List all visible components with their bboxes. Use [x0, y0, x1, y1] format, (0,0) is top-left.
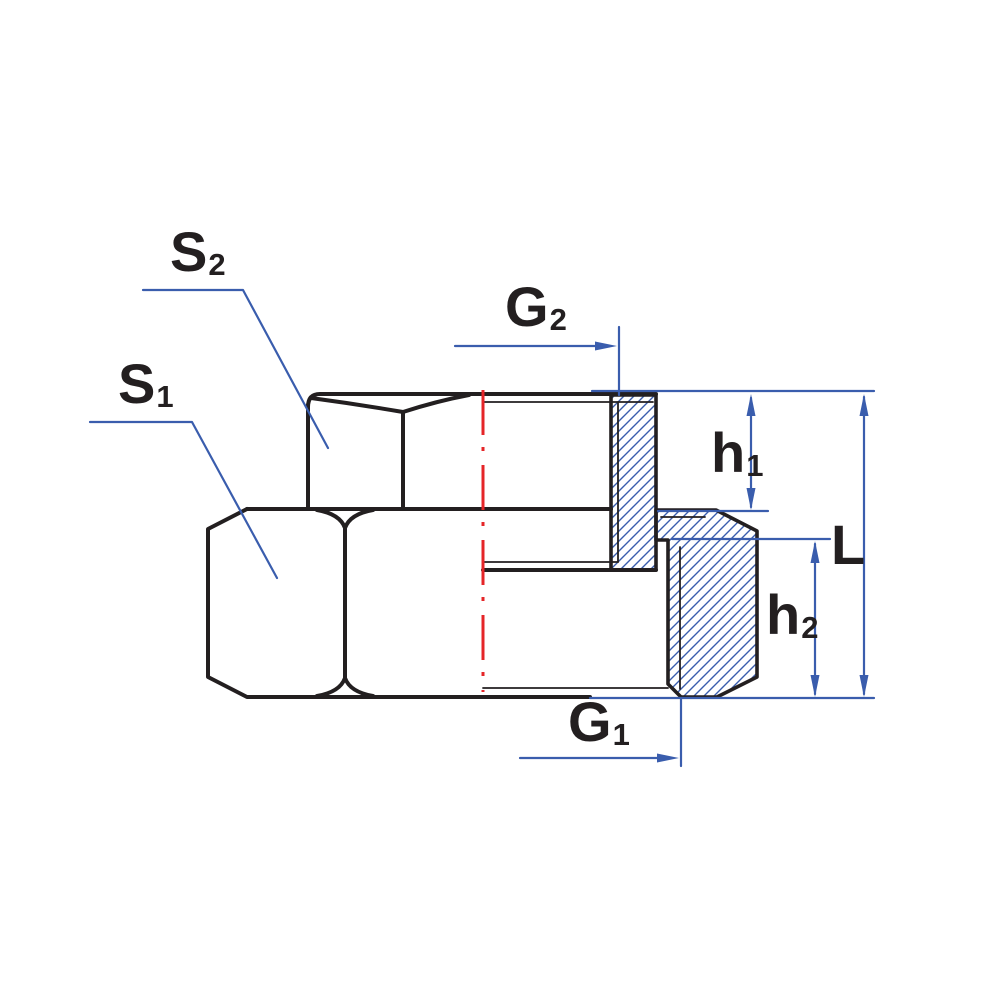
- h2-up-arrowhead: [811, 541, 820, 563]
- fitting-section-drawing: [0, 0, 1000, 1000]
- label-g1-subscript: 1: [613, 717, 630, 752]
- label-h1: h1: [711, 425, 763, 481]
- label-h1-subscript: 1: [746, 448, 763, 483]
- h1-down-arrowhead: [747, 488, 756, 510]
- h1-up-arrowhead: [747, 394, 756, 416]
- h2-down-arrowhead: [811, 675, 820, 697]
- label-g2-subscript: 2: [550, 302, 567, 337]
- label-h2-main: h: [766, 583, 800, 646]
- technical-drawing-canvas: S2 S1 G2 G1 h1 h2 L: [0, 0, 1000, 1000]
- s1-leader-line: [90, 422, 277, 578]
- part-outline: [208, 394, 656, 697]
- label-s2-subscript: 2: [208, 247, 225, 282]
- label-l: L: [831, 517, 866, 573]
- l-down-arrowhead: [860, 675, 869, 697]
- label-s1-main: S: [118, 352, 155, 415]
- large-hex-outline: [208, 509, 590, 697]
- label-h2-subscript: 2: [801, 610, 818, 645]
- label-h2: h2: [766, 587, 818, 643]
- label-s2: S2: [170, 224, 226, 280]
- l-up-arrowhead: [860, 394, 869, 416]
- label-g2-main: G: [505, 275, 549, 338]
- label-s2-main: S: [170, 220, 207, 283]
- label-g1: G1: [568, 694, 630, 750]
- label-s1-subscript: 1: [156, 379, 173, 414]
- label-s1: S1: [118, 356, 174, 412]
- label-h1-main: h: [711, 421, 745, 484]
- label-g1-main: G: [568, 690, 612, 753]
- g2-arrowhead: [595, 342, 617, 351]
- label-g2: G2: [505, 279, 567, 335]
- label-l-main: L: [831, 513, 865, 576]
- small-hex-chamfer-arcs: [311, 395, 469, 412]
- g1-arrowhead: [657, 754, 679, 763]
